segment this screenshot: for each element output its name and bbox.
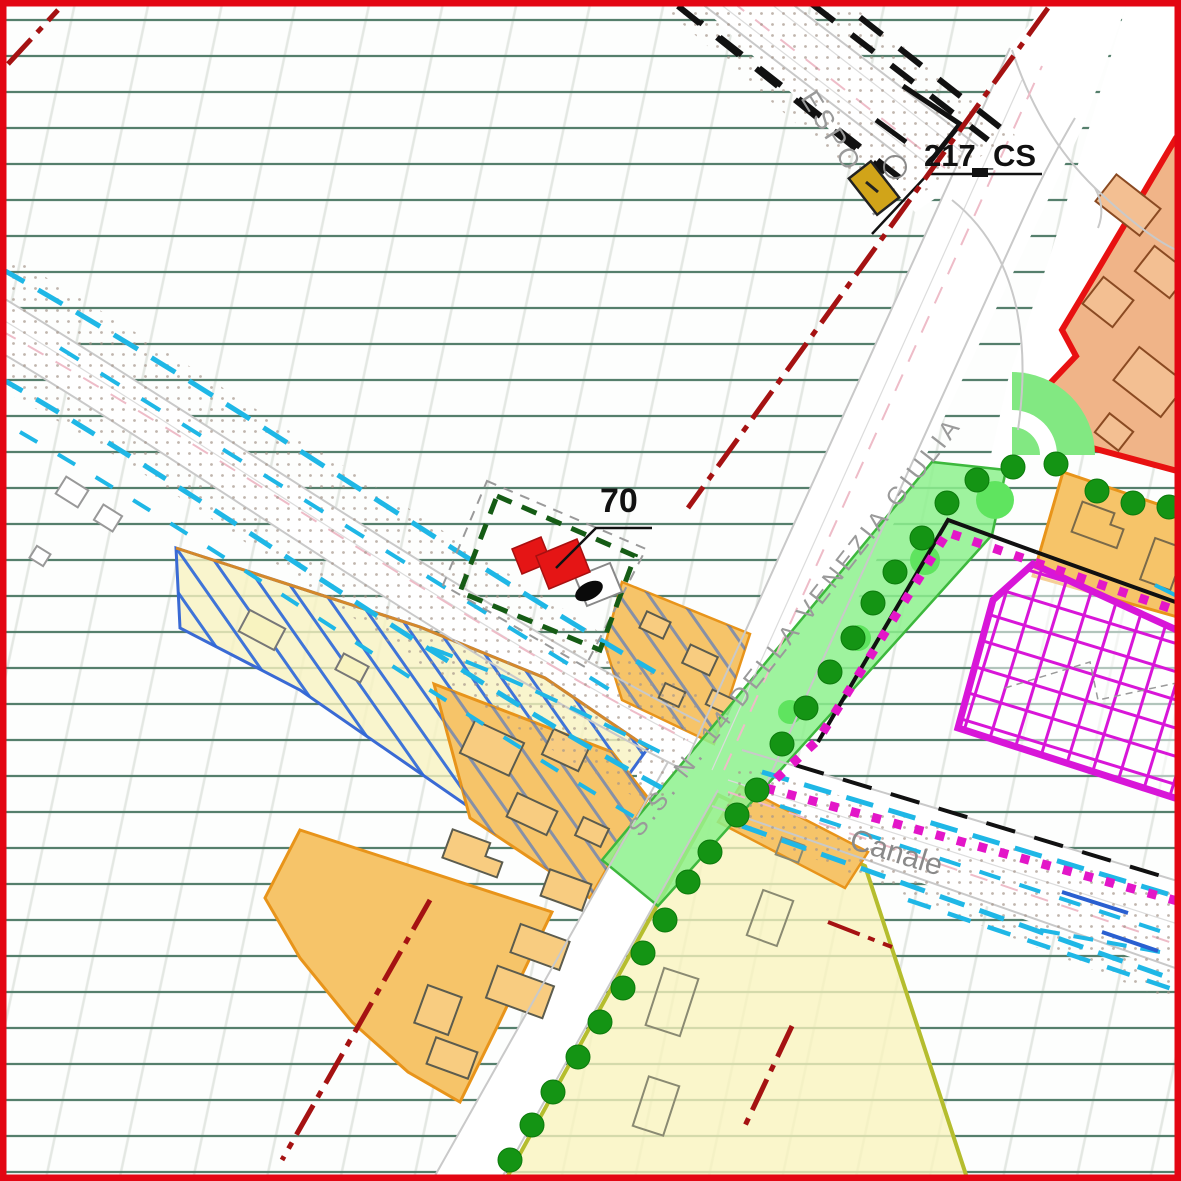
map-viewport[interactable]: ESPOSTI 70 217_CS S.S. N. 14 DELLA VENEZ… bbox=[0, 0, 1181, 1181]
map-canvas[interactable]: ESPOSTI 70 217_CS S.S. N. 14 DELLA VENEZ… bbox=[0, 0, 1181, 1181]
parcel-70-label: 70 bbox=[600, 482, 638, 520]
junction-code-label: 217_CS bbox=[924, 138, 1036, 173]
